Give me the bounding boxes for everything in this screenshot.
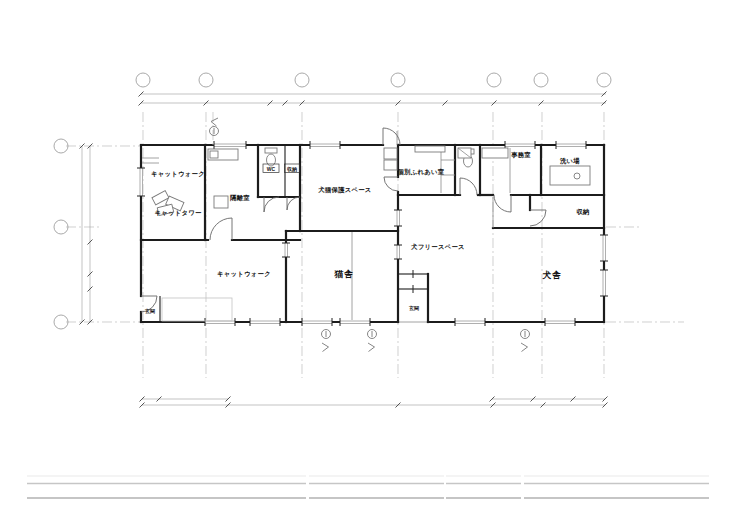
- cabinet: [458, 148, 471, 158]
- room-label-washing-area: 洗い場: [559, 157, 580, 165]
- room-label-wc: WC: [267, 166, 276, 172]
- room-label-dog-cat-rescue-space: 犬猫保護スペース: [317, 186, 371, 194]
- window-symbol: [455, 318, 485, 326]
- room-label-cat-tower: キャットタワー: [154, 209, 201, 217]
- room-label-cat-walk-upper: キャットウォーク: [151, 170, 205, 178]
- section-marker-bottom: [322, 330, 331, 352]
- window-symbol: [545, 318, 575, 326]
- bottom-dim-ticks: [140, 397, 608, 408]
- platform-step: [162, 298, 232, 321]
- section-marker-bottom: [368, 330, 377, 352]
- door-swing: [210, 218, 232, 240]
- window-symbol: [137, 168, 145, 196]
- door-swing: [264, 197, 279, 212]
- room-label-individual-interaction-room: 個別ふれあい室: [397, 168, 445, 176]
- window-symbol: [394, 245, 402, 259]
- bay-window: [415, 146, 445, 152]
- grid-bubble: [597, 73, 611, 87]
- toilet-fixture: [265, 148, 277, 166]
- window-symbol: [214, 141, 246, 149]
- counter: [208, 149, 238, 160]
- left-dim-ticks: [80, 144, 93, 325]
- window-symbol: [505, 141, 535, 149]
- office-cabinet: [482, 148, 508, 158]
- grid-markers: [54, 73, 611, 329]
- room-label-office: 事務室: [511, 151, 531, 159]
- grid-bubble: [199, 73, 213, 87]
- section-marker-bottom: [521, 330, 530, 352]
- room-label-cat-walk-lower: キャットウォーク: [217, 270, 271, 278]
- window-symbol: [302, 318, 332, 326]
- room-label-isolation-room: 隔離室: [230, 194, 250, 202]
- grid-bubble: [391, 73, 405, 87]
- window-symbol: [310, 141, 340, 149]
- window-symbol: [250, 318, 280, 326]
- room-label-cat-house: 猫舎: [333, 269, 354, 279]
- door-swing: [383, 128, 400, 145]
- window-symbol: [205, 318, 235, 326]
- floor-plan-drawing: キャットウォーク キャットタワー 隔離室 WC 収納 犬猫保護スペース 個別ふれ…: [0, 0, 736, 521]
- grid-centerlines: [66, 112, 684, 378]
- top-dim-ticks: [139, 92, 607, 106]
- drawing-sheet: キャットウォーク キャットタワー 隔離室 WC 収納 犬猫保護スペース 個別ふれ…: [0, 0, 736, 521]
- title-block: [27, 476, 709, 498]
- window-symbol: [340, 318, 370, 326]
- window-symbol: [282, 243, 290, 257]
- window-symbol: [394, 210, 402, 226]
- door-swing: [287, 197, 300, 210]
- room-label-entrance-center: 玄関: [408, 305, 419, 311]
- grid-bubble: [295, 73, 309, 87]
- grid-bubble: [534, 73, 548, 87]
- door-swing: [460, 178, 477, 195]
- window-symbol: [600, 235, 608, 261]
- room-label-dog-free-space: 犬フリースペース: [410, 243, 465, 251]
- fixtures: [142, 146, 590, 321]
- sink-fixture: [550, 166, 590, 185]
- grid-bubble: [136, 73, 150, 87]
- window-symbol: [556, 141, 586, 149]
- door-swing: [494, 195, 511, 212]
- room-label-storage-small: 収納: [287, 166, 297, 173]
- dimension-lines: [80, 92, 608, 408]
- grid-bubble: [54, 139, 68, 153]
- room-label-entrance-left: 玄関: [144, 308, 155, 314]
- window-symbol: [600, 270, 608, 296]
- grid-bubble: [54, 315, 68, 329]
- storage-boxes: [384, 148, 397, 170]
- table: [214, 196, 228, 208]
- door-swing: [530, 210, 546, 226]
- door-swing: [384, 177, 398, 191]
- section-marker-top: [210, 112, 219, 145]
- wall-shelf: [142, 158, 159, 163]
- grid-bubble: [54, 220, 68, 234]
- room-label-dog-house: 犬舎: [541, 270, 562, 280]
- room-label-storage-right: 収納: [576, 208, 589, 216]
- grid-bubble: [487, 73, 501, 87]
